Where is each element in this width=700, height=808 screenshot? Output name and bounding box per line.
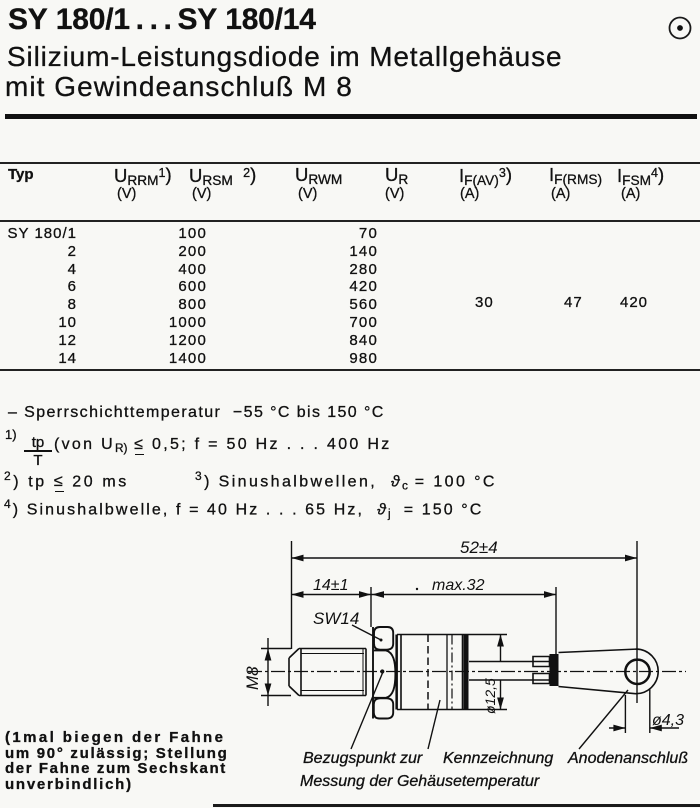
svg-text:52±4: 52±4 (460, 538, 498, 557)
svg-text:14±1: 14±1 (313, 577, 348, 594)
svg-text:max.32: max.32 (432, 577, 485, 594)
svg-text:SW14: SW14 (313, 609, 359, 628)
svg-text:M8: M8 (243, 666, 262, 690)
svg-text:ø12,5: ø12,5 (482, 678, 498, 714)
svg-text:ø4,3: ø4,3 (652, 712, 684, 729)
